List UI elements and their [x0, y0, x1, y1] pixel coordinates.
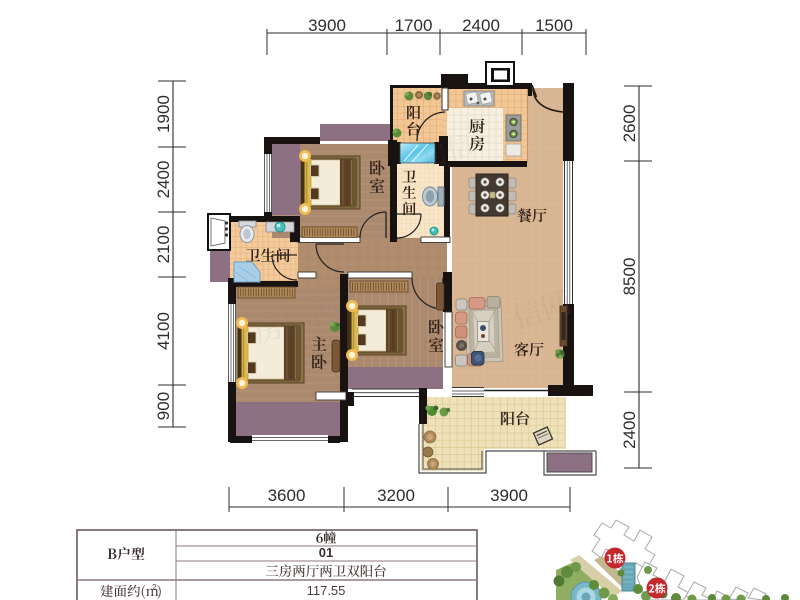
svg-text:117.55: 117.55	[307, 583, 346, 598]
svg-text:2400: 2400	[154, 161, 173, 199]
svg-text:1500: 1500	[535, 16, 573, 35]
svg-text:2100: 2100	[154, 226, 173, 264]
svg-text:01: 01	[319, 545, 333, 560]
svg-text:3600: 3600	[268, 486, 306, 505]
svg-text:900: 900	[154, 392, 173, 420]
svg-text:2600: 2600	[620, 105, 639, 143]
svg-text:1900: 1900	[154, 95, 173, 133]
svg-text:2400: 2400	[462, 16, 500, 35]
svg-text:3200: 3200	[377, 486, 415, 505]
svg-text:2: 2	[152, 583, 157, 592]
svg-text:3900: 3900	[308, 16, 346, 35]
svg-text:8500: 8500	[620, 258, 639, 296]
svg-text:1700: 1700	[395, 16, 433, 35]
svg-text:3900: 3900	[490, 486, 528, 505]
svg-text:2400: 2400	[620, 411, 639, 449]
svg-text:4100: 4100	[154, 312, 173, 350]
